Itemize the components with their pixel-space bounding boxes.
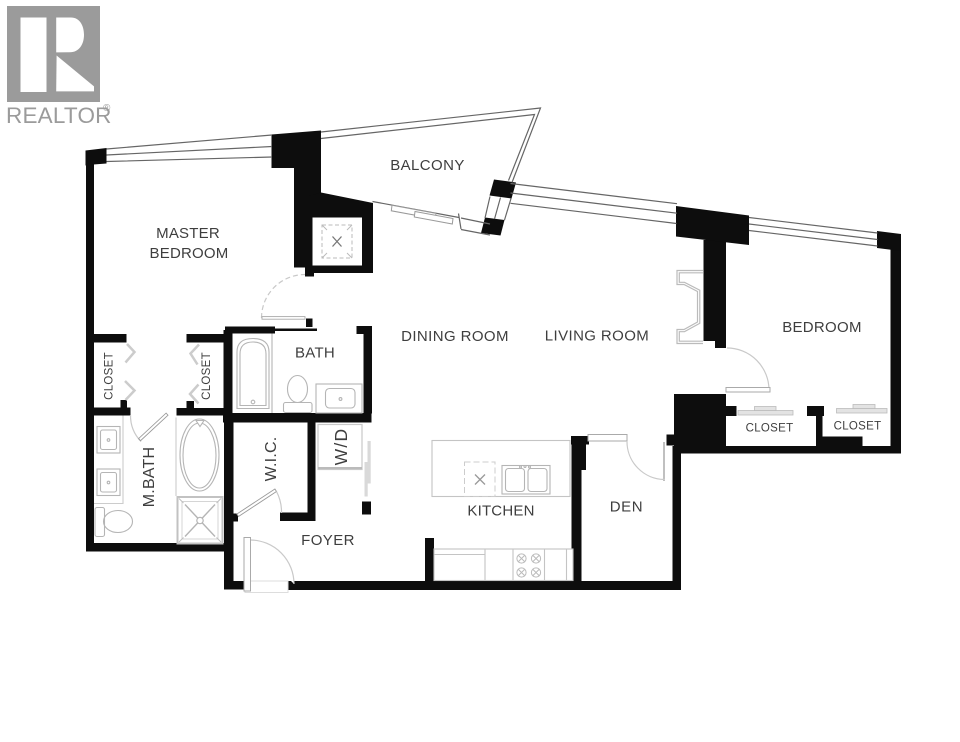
svg-text:M.BATH: M.BATH	[141, 447, 158, 507]
svg-text:LIVING ROOM: LIVING ROOM	[545, 328, 649, 345]
svg-text:CLOSET: CLOSET	[104, 352, 116, 400]
svg-text:CLOSET: CLOSET	[834, 421, 882, 433]
svg-text:CLOSET: CLOSET	[746, 423, 794, 435]
svg-text:W/D: W/D	[331, 428, 351, 466]
svg-text:CLOSET: CLOSET	[201, 352, 213, 400]
svg-text:DEN: DEN	[610, 499, 643, 516]
svg-text:W.I.C.: W.I.C.	[263, 437, 280, 482]
svg-text:BEDROOM: BEDROOM	[150, 245, 229, 262]
svg-text:REALTOR: REALTOR	[6, 103, 112, 128]
svg-text:MASTER: MASTER	[156, 225, 220, 242]
svg-text:BEDROOM: BEDROOM	[782, 319, 862, 336]
svg-text:DINING ROOM: DINING ROOM	[401, 328, 509, 345]
svg-text:BALCONY: BALCONY	[390, 157, 465, 174]
svg-text:BATH: BATH	[295, 345, 335, 362]
svg-text:®: ®	[103, 103, 111, 114]
svg-text:KITCHEN: KITCHEN	[467, 503, 534, 520]
svg-text:FOYER: FOYER	[301, 532, 355, 549]
